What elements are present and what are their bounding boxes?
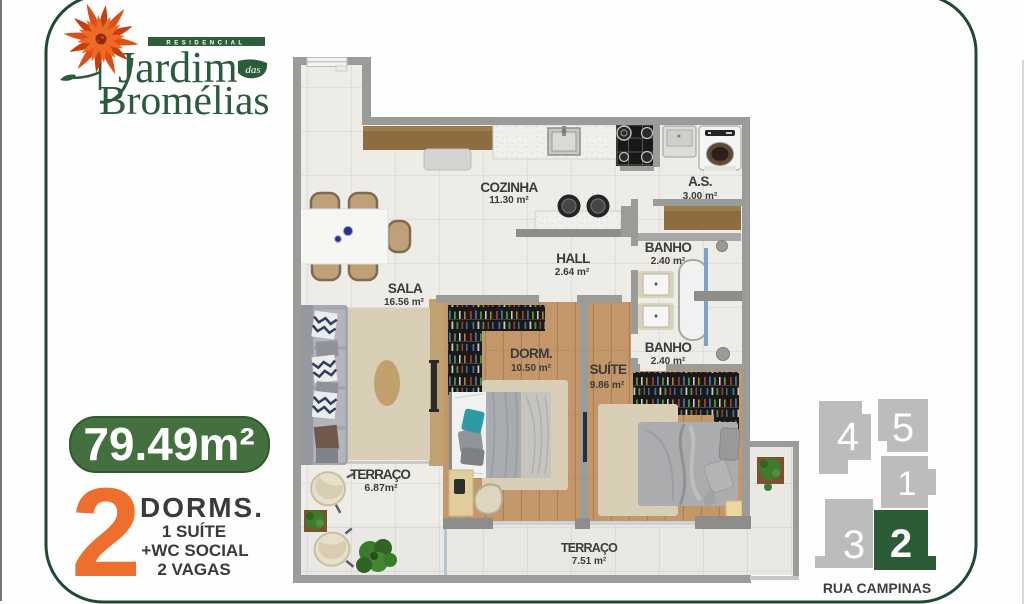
svg-text:3: 3 [843, 523, 865, 567]
svg-text:4: 4 [837, 415, 859, 459]
svg-text:das: das [245, 64, 260, 76]
svg-text:DORMS.: DORMS. [140, 492, 264, 523]
svg-text:2: 2 [890, 522, 912, 566]
svg-text:5: 5 [892, 406, 914, 450]
svg-text:2.64 m²: 2.64 m² [555, 267, 590, 278]
svg-text:RUA CAMPINAS: RUA CAMPINAS [823, 580, 931, 596]
svg-text:16.56 m²: 16.56 m² [384, 297, 425, 308]
svg-text:SUÍTE: SUÍTE [590, 362, 627, 377]
svg-text:A.S.: A.S. [688, 174, 712, 189]
svg-text:Bromélias: Bromélias [99, 77, 270, 123]
svg-text:9.86 m²: 9.86 m² [590, 380, 625, 391]
svg-text:SALA: SALA [388, 281, 423, 296]
svg-text:HALL: HALL [556, 251, 590, 266]
svg-text:11.30 m²: 11.30 m² [489, 195, 529, 206]
svg-text:2: 2 [71, 462, 141, 603]
svg-text:+WC SOCIAL: +WC SOCIAL [141, 541, 248, 560]
svg-text:TERRAÇO: TERRAÇO [561, 541, 618, 555]
svg-text:BANHO: BANHO [645, 240, 692, 255]
svg-text:6.87m²: 6.87m² [364, 482, 398, 494]
svg-text:2 VAGAS: 2 VAGAS [157, 560, 230, 579]
svg-text:1 SUÍTE: 1 SUÍTE [162, 522, 226, 541]
svg-text:2.40 m²: 2.40 m² [651, 356, 686, 367]
svg-text:TERRAÇO: TERRAÇO [350, 467, 410, 482]
svg-text:BANHO: BANHO [645, 340, 692, 355]
svg-text:COZINHA: COZINHA [480, 180, 538, 195]
svg-text:7.51 m²: 7.51 m² [572, 556, 607, 567]
svg-text:DORM.: DORM. [510, 346, 552, 361]
svg-text:3.00 m²: 3.00 m² [683, 191, 718, 202]
svg-text:2.40 m²: 2.40 m² [651, 256, 686, 267]
svg-text:1: 1 [898, 465, 917, 503]
svg-text:10.50 m²: 10.50 m² [511, 363, 552, 374]
